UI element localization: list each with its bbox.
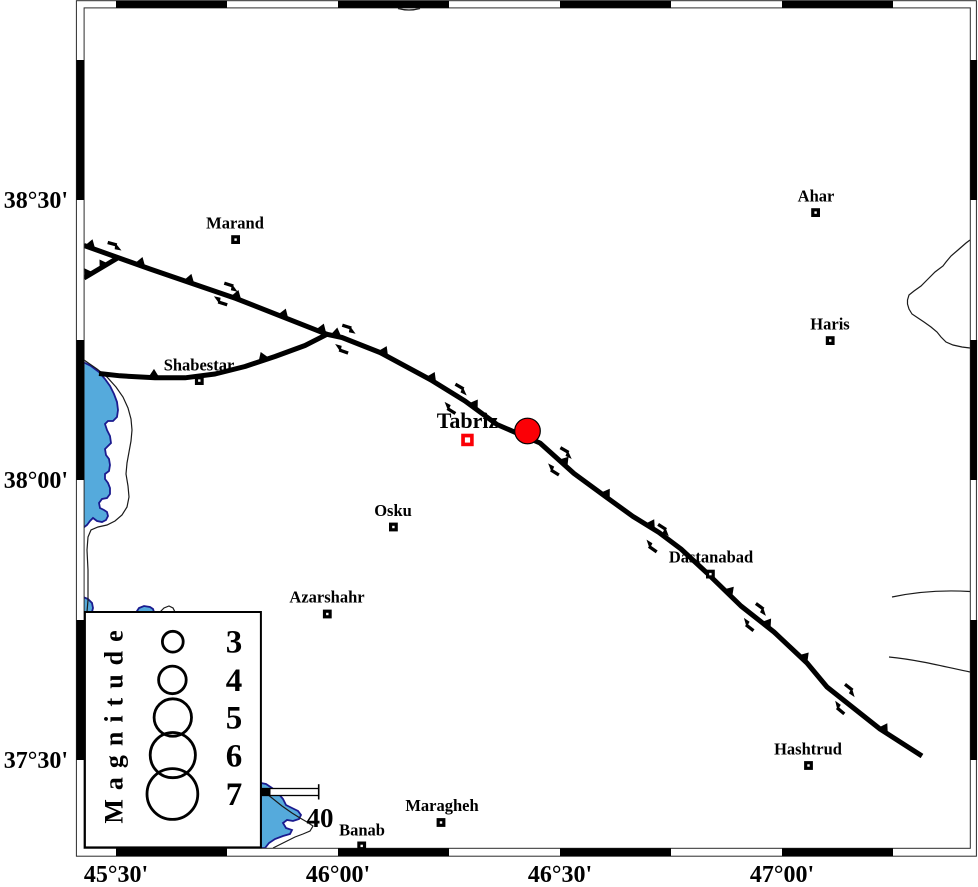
svg-text:Dastanabad: Dastanabad — [669, 548, 753, 567]
svg-text:37°30': 37°30' — [4, 748, 68, 774]
svg-text:Ahar: Ahar — [798, 187, 835, 206]
svg-text:Banab: Banab — [339, 821, 385, 840]
svg-text:38°00': 38°00' — [4, 468, 68, 494]
svg-text:4: 4 — [226, 663, 243, 699]
svg-text:Maragheh: Maragheh — [405, 796, 478, 815]
svg-text:Shabestar: Shabestar — [164, 356, 235, 375]
svg-text:Magnitude: Magnitude — [100, 621, 129, 823]
svg-text:Tabriz: Tabriz — [437, 408, 499, 433]
svg-text:3: 3 — [226, 625, 243, 661]
svg-text:45°30': 45°30' — [84, 862, 148, 887]
svg-text:40: 40 — [307, 803, 334, 833]
svg-text:46°00': 46°00' — [306, 862, 370, 887]
svg-text:6: 6 — [226, 739, 243, 775]
svg-text:Azarshahr: Azarshahr — [289, 588, 364, 607]
svg-text:Hashtrud: Hashtrud — [774, 740, 842, 759]
svg-text:Marand: Marand — [206, 214, 264, 233]
svg-text:46°30': 46°30' — [528, 862, 592, 887]
svg-text:Osku: Osku — [374, 501, 412, 520]
svg-text:7: 7 — [226, 777, 243, 813]
svg-text:47°00': 47°00' — [750, 862, 814, 887]
svg-text:5: 5 — [226, 701, 243, 737]
svg-text:Haris: Haris — [810, 315, 850, 334]
svg-text:38°30': 38°30' — [4, 188, 68, 214]
